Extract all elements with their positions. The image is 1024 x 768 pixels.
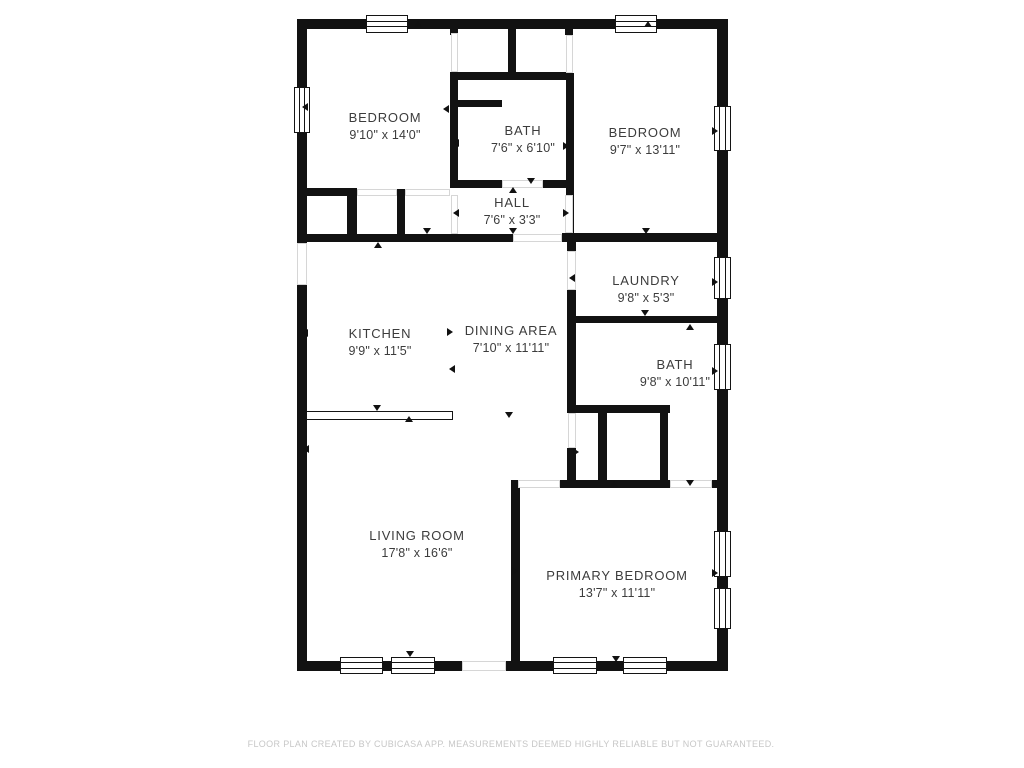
door-swing-arrow bbox=[453, 139, 459, 147]
wall bbox=[457, 100, 502, 107]
room-dimensions: 13'7" x 11'11" bbox=[546, 586, 688, 600]
wall bbox=[562, 233, 728, 242]
room-name: HALL bbox=[484, 195, 541, 210]
door-swing-arrow bbox=[563, 142, 569, 150]
wall bbox=[450, 72, 572, 80]
wall bbox=[660, 412, 668, 480]
door-swing-arrow bbox=[512, 567, 518, 575]
wall bbox=[712, 480, 720, 488]
door-opening bbox=[451, 33, 458, 72]
door-swing-arrow bbox=[712, 127, 718, 135]
wall bbox=[568, 405, 670, 413]
door-swing-arrow bbox=[527, 178, 535, 184]
door-swing-arrow bbox=[563, 209, 569, 217]
room-name: LIVING ROOM bbox=[369, 528, 464, 543]
door-swing-arrow bbox=[712, 569, 718, 577]
room-dimensions: 7'10" x 11'11" bbox=[465, 341, 558, 355]
room-dimensions: 7'6" x 3'3" bbox=[484, 213, 541, 227]
wall bbox=[598, 413, 607, 480]
door-swing-arrow bbox=[443, 105, 449, 113]
room-label-bath: BATH7'6" x 6'10" bbox=[491, 123, 555, 155]
door-swing-arrow bbox=[644, 21, 652, 27]
room-name: PRIMARY BEDROOM bbox=[546, 568, 688, 583]
window bbox=[623, 657, 667, 674]
door-opening bbox=[568, 413, 576, 448]
door-swing-arrow bbox=[374, 242, 382, 248]
door-swing-arrow bbox=[573, 448, 579, 456]
door-opening bbox=[513, 234, 562, 242]
door-swing-arrow bbox=[414, 21, 422, 27]
room-label-bedroom: BEDROOM9'10" x 14'0" bbox=[349, 110, 422, 142]
room-dimensions: 17'8" x 16'6" bbox=[369, 546, 464, 560]
room-label-primary-bedroom: PRIMARY BEDROOM13'7" x 11'11" bbox=[546, 568, 688, 600]
kitchen-counter bbox=[306, 411, 453, 420]
door-swing-arrow bbox=[641, 310, 649, 316]
wall bbox=[575, 316, 728, 323]
door-opening bbox=[462, 661, 506, 671]
window bbox=[553, 657, 597, 674]
door-swing-arrow bbox=[509, 187, 517, 193]
wall bbox=[543, 180, 572, 188]
room-dimensions: 9'10" x 14'0" bbox=[349, 128, 422, 142]
door-swing-arrow bbox=[712, 367, 718, 375]
wall bbox=[450, 72, 458, 187]
door-swing-arrow bbox=[567, 127, 573, 135]
wall bbox=[508, 28, 516, 72]
door-swing-arrow bbox=[569, 274, 575, 282]
footer-disclaimer: FLOOR PLAN CREATED BY CUBICASA APP. MEAS… bbox=[248, 739, 775, 749]
room-dimensions: 9'8" x 5'3" bbox=[612, 291, 680, 305]
room-dimensions: 9'9" x 11'5" bbox=[348, 344, 411, 358]
door-opening bbox=[567, 251, 576, 290]
door-swing-arrow bbox=[405, 416, 413, 422]
room-label-hall: HALL7'6" x 3'3" bbox=[484, 195, 541, 227]
wall bbox=[567, 290, 576, 413]
room-name: BATH bbox=[640, 357, 710, 372]
door-swing-arrow bbox=[423, 228, 431, 234]
room-name: BATH bbox=[491, 123, 555, 138]
room-label-dining-area: DINING AREA7'10" x 11'11" bbox=[465, 323, 558, 355]
door-swing-arrow bbox=[505, 412, 513, 418]
door-swing-arrow bbox=[453, 209, 459, 217]
room-name: KITCHEN bbox=[348, 326, 411, 341]
wall bbox=[565, 28, 573, 35]
door-swing-arrow bbox=[302, 103, 308, 111]
door-swing-arrow bbox=[373, 405, 381, 411]
window bbox=[714, 588, 731, 629]
door-opening bbox=[566, 35, 573, 73]
door-swing-arrow bbox=[406, 651, 414, 657]
room-label-living-room: LIVING ROOM17'8" x 16'6" bbox=[369, 528, 464, 560]
door-swing-arrow bbox=[302, 329, 308, 337]
room-dimensions: 9'7" x 13'11" bbox=[609, 143, 682, 157]
room-label-laundry: LAUNDRY9'8" x 5'3" bbox=[612, 273, 680, 305]
window bbox=[340, 657, 383, 674]
wall bbox=[397, 189, 405, 240]
floor-plan-canvas: BEDROOM9'10" x 14'0"BATH7'6" x 6'10"BEDR… bbox=[0, 0, 1024, 768]
room-name: BEDROOM bbox=[609, 125, 682, 140]
door-swing-arrow bbox=[449, 365, 455, 373]
window bbox=[366, 15, 408, 33]
door-swing-arrow bbox=[303, 445, 309, 453]
room-name: BEDROOM bbox=[349, 110, 422, 125]
wall bbox=[297, 234, 513, 242]
wall bbox=[347, 188, 357, 240]
wall bbox=[567, 242, 576, 251]
door-swing-arrow bbox=[509, 228, 517, 234]
door-opening bbox=[405, 189, 450, 196]
room-dimensions: 7'6" x 6'10" bbox=[491, 141, 555, 155]
door-swing-arrow bbox=[642, 228, 650, 234]
room-label-bedroom: BEDROOM9'7" x 13'11" bbox=[609, 125, 682, 157]
wall bbox=[450, 180, 502, 188]
door-swing-arrow bbox=[447, 328, 453, 336]
door-opening bbox=[518, 480, 560, 488]
room-dimensions: 9'8" x 10'11" bbox=[640, 375, 710, 389]
room-label-kitchen: KITCHEN9'9" x 11'5" bbox=[348, 326, 411, 358]
room-name: LAUNDRY bbox=[612, 273, 680, 288]
door-opening bbox=[357, 189, 397, 196]
door-swing-arrow bbox=[612, 656, 620, 662]
door-swing-arrow bbox=[712, 278, 718, 286]
door-swing-arrow bbox=[686, 324, 694, 330]
door-swing-arrow bbox=[686, 480, 694, 486]
room-label-bath: BATH9'8" x 10'11" bbox=[640, 357, 710, 389]
room-name: DINING AREA bbox=[465, 323, 558, 338]
door-opening bbox=[297, 243, 307, 285]
door-swing-arrow bbox=[610, 481, 618, 487]
window bbox=[391, 657, 435, 674]
